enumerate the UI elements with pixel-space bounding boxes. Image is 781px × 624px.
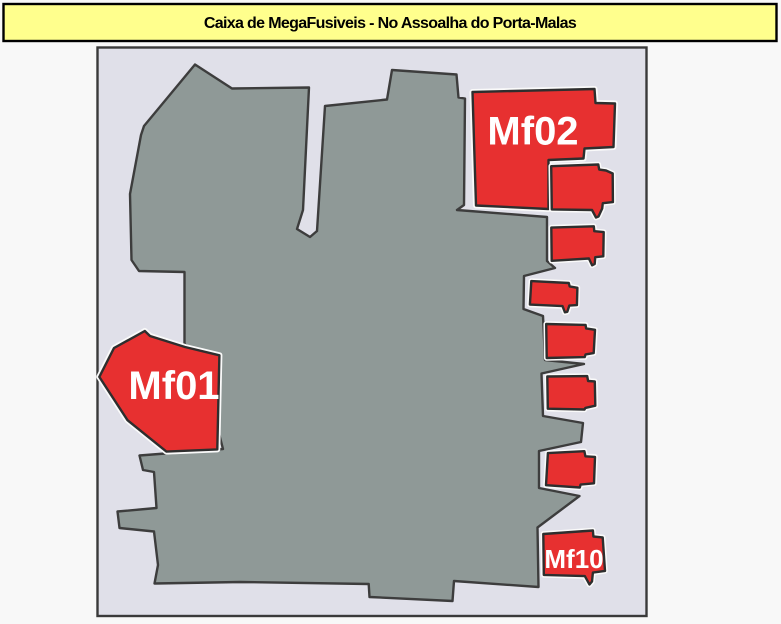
svg-text:Caixa de MegaFusiveis - No Ass: Caixa de MegaFusiveis - No Assoalha do P… <box>204 15 577 32</box>
svg-text:Mf01: Mf01 <box>128 364 219 408</box>
svg-text:Mf10: Mf10 <box>544 544 603 574</box>
svg-text:Mf02: Mf02 <box>487 110 578 154</box>
